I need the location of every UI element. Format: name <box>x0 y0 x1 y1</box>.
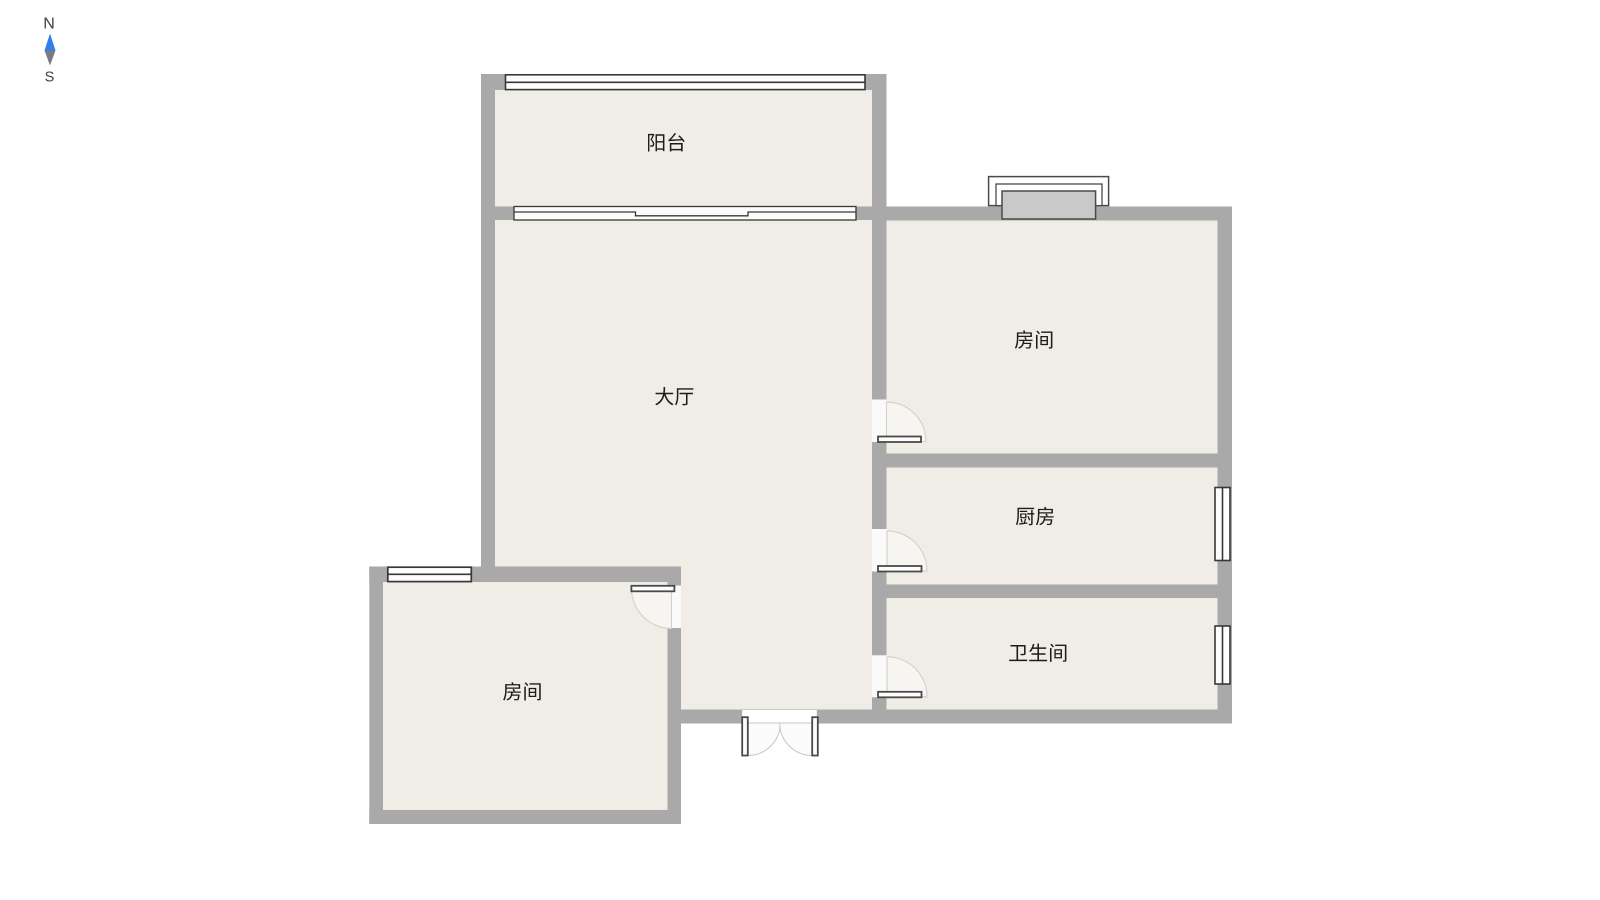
svg-text:S: S <box>45 70 55 86</box>
svg-text:N: N <box>43 16 55 33</box>
